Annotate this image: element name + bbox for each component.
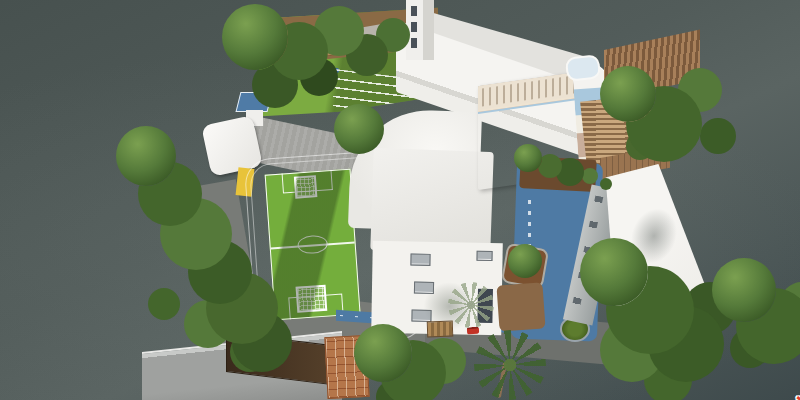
garden-hedge [514,144,542,172]
tree [222,4,288,70]
play-item-red [354,64,359,69]
wooden-planter-box [427,321,454,338]
planter-tree [508,244,542,278]
tree [712,258,776,322]
soccer-field [265,169,361,321]
roof-vent [642,293,662,306]
tree [354,324,412,382]
tree [334,104,384,154]
rendering-canvas: 头条@大正幼儿园设计 [0,0,800,400]
tree [600,66,656,122]
main-building-wing-roof [370,148,493,254]
palm-tree [474,330,546,400]
watermark-brand: 头条 [792,392,800,400]
tree [580,238,648,306]
palm-tree [448,282,494,328]
dirt-patch [496,282,545,331]
tree [116,126,176,186]
tower-window [411,6,417,16]
window [476,251,492,261]
tower [406,0,434,60]
window [410,254,430,266]
tower-window [411,22,417,32]
gazebo-roof [236,92,273,112]
building-shadow-on-field [266,170,360,320]
rooftop-balcony [565,54,601,81]
tower-window [411,38,417,48]
